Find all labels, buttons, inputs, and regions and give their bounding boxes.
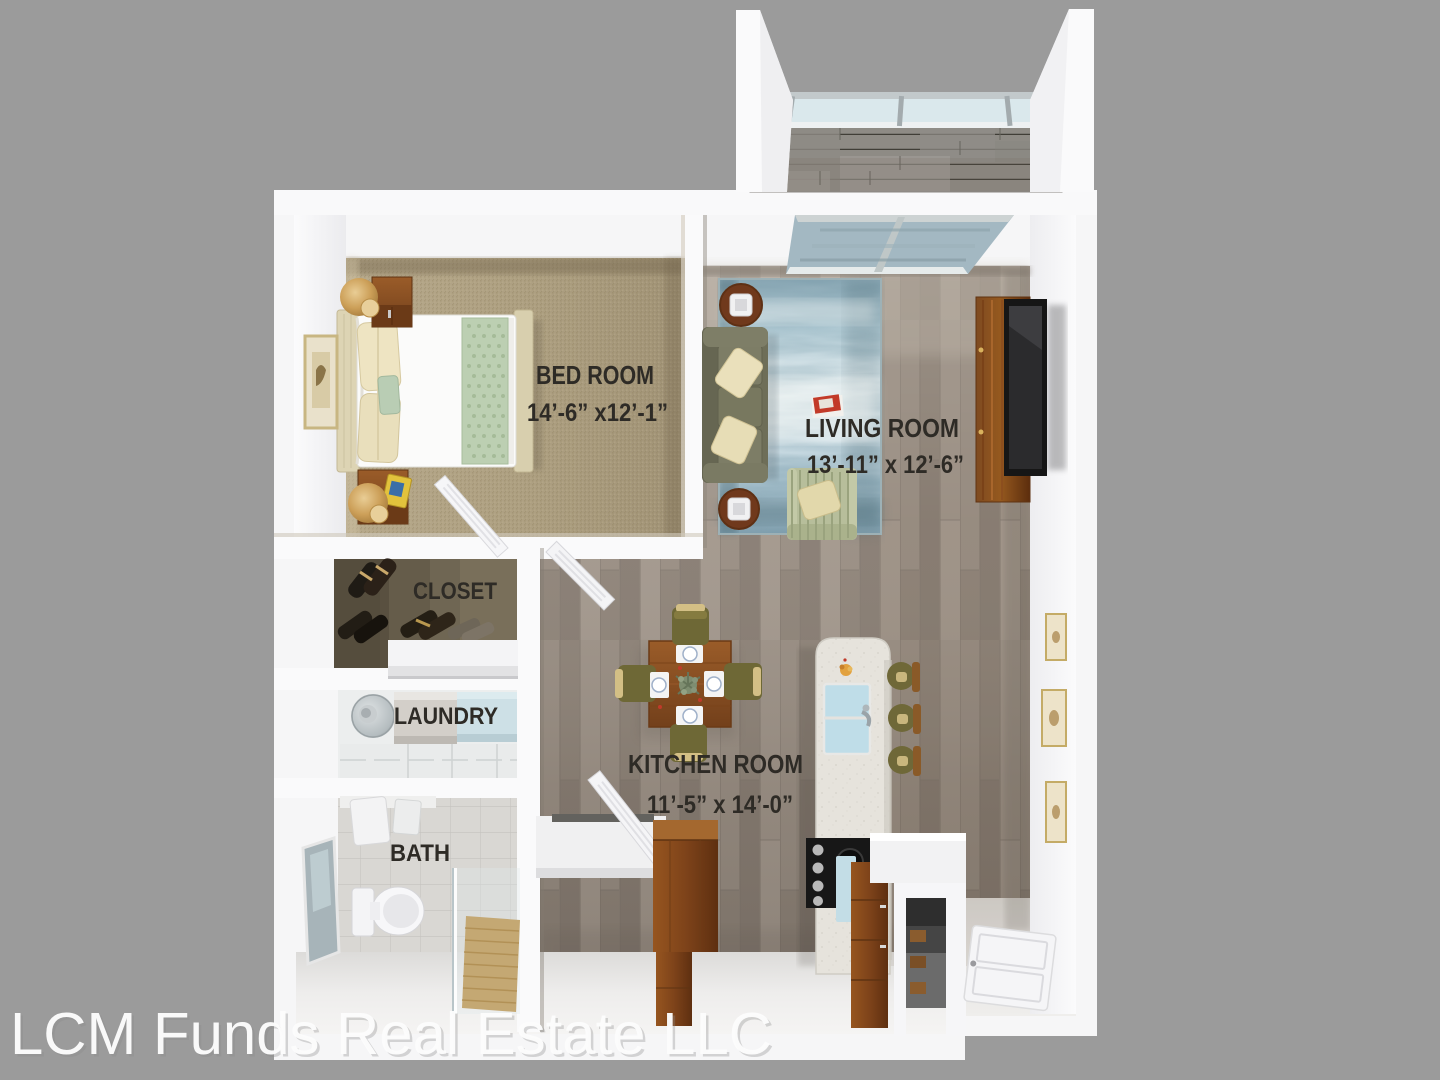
- svg-text:14’-6” x12’-1”: 14’-6” x12’-1”: [527, 399, 668, 427]
- svg-text:LIVING ROOM: LIVING ROOM: [805, 413, 959, 443]
- svg-text:KITCHEN ROOM: KITCHEN ROOM: [628, 749, 803, 779]
- svg-text:LCM Funds Real Estate LLC: LCM Funds Real Estate LLC: [10, 1001, 772, 1067]
- svg-text:BED ROOM: BED ROOM: [536, 360, 654, 390]
- svg-text:LAUNDRY: LAUNDRY: [394, 703, 498, 730]
- svg-text:11’-5” x 14’-0”: 11’-5” x 14’-0”: [647, 791, 793, 819]
- svg-text:CLOSET: CLOSET: [413, 578, 497, 605]
- svg-text:13’-11” x 12’-6”: 13’-11” x 12’-6”: [807, 451, 964, 479]
- svg-text:BATH: BATH: [390, 840, 450, 867]
